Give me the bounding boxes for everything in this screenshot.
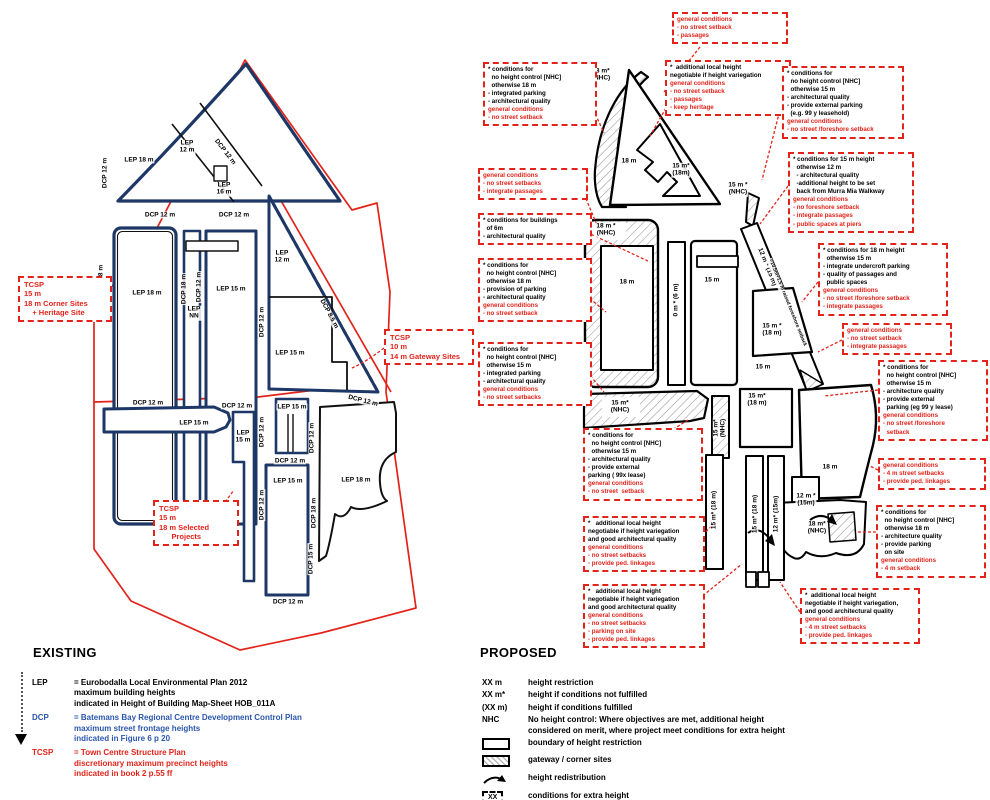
plan-diagram: DCP 12 mLEP 18 mLEP12 mDCP 12 mLEP16 mDC…	[0, 0, 990, 800]
existing-map-shapes	[94, 60, 416, 650]
proposed-map-shapes	[578, 47, 878, 612]
map-graphics	[0, 0, 990, 800]
